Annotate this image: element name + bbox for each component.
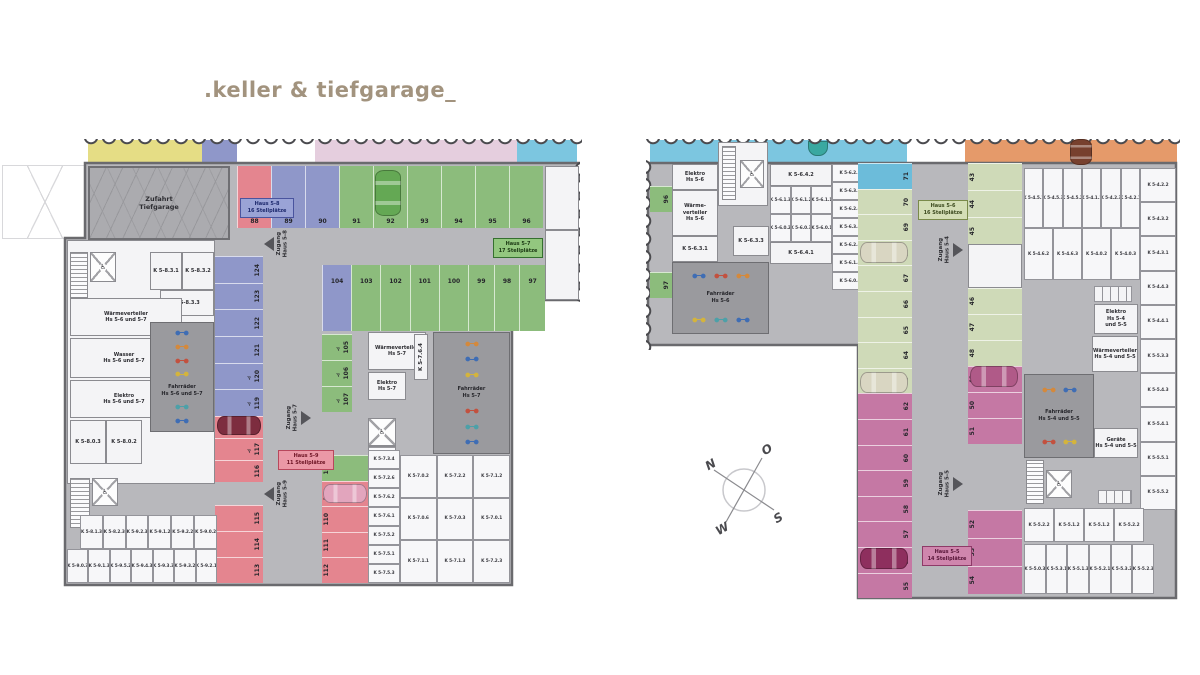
- space-number: 59: [904, 479, 910, 487]
- zugang-label: Zugang Haus 5-4: [938, 236, 951, 263]
- badge-haus-5-9: Haus 5-9 11 Stellplätze: [278, 450, 334, 470]
- bicycle-icon: [692, 273, 706, 279]
- storage-room: K 5-4.6.3: [1053, 228, 1082, 280]
- access-arrow-icon: [953, 477, 963, 491]
- bicycle-icon: [175, 404, 189, 410]
- parking-space: 51: [968, 418, 1022, 444]
- space-number: 121: [255, 344, 261, 357]
- storage-label: K 5-5.5.1: [1148, 456, 1169, 461]
- car-icon: [1070, 139, 1092, 165]
- storage-room: K 5-7.2.6: [368, 469, 400, 488]
- storage-room: K 5-9.0.2: [194, 515, 217, 549]
- storage-label: K 5-6.1.2: [791, 198, 812, 203]
- storage-room: K 5-7.1.3: [437, 540, 474, 583]
- lockers: [1094, 286, 1132, 302]
- bicycle-icon: [736, 273, 750, 279]
- parking-space: ♿117: [215, 438, 263, 460]
- storage-label: K 5-7.5.1: [374, 552, 395, 557]
- access-arrow-icon: [264, 237, 274, 251]
- storage-label: K 5-4.2.1: [1121, 196, 1140, 201]
- bicycle-icon: [1042, 387, 1056, 393]
- badge-haus-5-7: Haus 5-7 17 Stellplätze: [493, 238, 543, 258]
- parking-space: 47: [968, 314, 1022, 340]
- parking-space: 114: [215, 531, 263, 557]
- storage-label: K 5-8.2.3: [104, 530, 125, 535]
- storage-grid-4-row1: K 5-4.5.1K 5-4.5.3K 5-4.5.2K 5-4.1.1K 5-…: [1024, 168, 1140, 228]
- storage-room: K 5-6.0.2: [770, 214, 791, 242]
- parking-space: 55: [858, 573, 912, 599]
- stairs: [722, 146, 736, 200]
- storage-label: K 5-5.0.3: [1024, 567, 1045, 572]
- parking-space: 100: [439, 265, 468, 331]
- storage-label: K 5-7.0.3: [445, 516, 466, 521]
- parking-space: 91: [339, 166, 373, 228]
- storage-label: K 5-4.1.1: [1082, 196, 1101, 201]
- room-k5803: K 5-8.0.3: [70, 420, 106, 464]
- space-number: 92: [386, 219, 394, 225]
- space-number: 51: [970, 427, 976, 435]
- storage-label: K 5-5.2.2: [1029, 523, 1050, 528]
- storage-label: K 5-9.4.3: [132, 564, 153, 569]
- storage-room: K 5-6.1.3: [770, 186, 791, 214]
- car-icon: [860, 372, 908, 393]
- bicycle-icon: [175, 418, 189, 424]
- parking-space: 124: [215, 256, 263, 283]
- zugang-haus-5-9: Zugang Haus 5-9: [264, 480, 289, 507]
- storage-room: K 5-7.6.1: [368, 507, 400, 526]
- room-unlabelled: [545, 230, 579, 300]
- storage-room: K 5-4.2.3: [1101, 168, 1120, 228]
- parking-space: 88: [237, 166, 271, 228]
- space-number: 96: [522, 219, 530, 225]
- storage-room: K 5-4.2.2: [1140, 168, 1176, 202]
- storage-room: K 5-5.2.3: [1132, 544, 1154, 594]
- room-k5802: K 5-8.0.2: [106, 420, 142, 464]
- zugang-haus-5-7: Zugang Haus 5-7: [286, 404, 311, 431]
- storage-label: K 5-9.2.2: [172, 530, 193, 535]
- compass-south-label: S: [771, 510, 785, 526]
- storage-label: K 5-7.0.6: [408, 516, 429, 521]
- parking-space: ♿107: [322, 386, 352, 412]
- storage-row-2: K 5-9.0.3K 5-9.1.3K 5-9.5.2K 5-9.4.3K 5-…: [67, 549, 217, 583]
- storage-label: K 5-7.6.2: [374, 495, 395, 500]
- storage-room: K 5-9.1.3: [88, 549, 109, 583]
- parking-space-96: 96: [650, 186, 672, 212]
- storage-label: K 5-7.2.6: [374, 476, 395, 481]
- storage-label: K 5-5.3.2: [1111, 567, 1132, 572]
- storage-label: K 5-5.1.2: [1089, 523, 1110, 528]
- storage-label: K 5-4.4.3: [1148, 285, 1169, 290]
- parking-space: 121: [215, 336, 263, 363]
- parking-space: 115: [215, 505, 263, 531]
- space-number: 117: [255, 443, 261, 456]
- storage-room: K 5-5.0.3: [1024, 544, 1046, 594]
- badge-line: 14 Stellplätze: [926, 556, 968, 563]
- storage-room: K 5-7.6.2: [368, 488, 400, 507]
- space-number: 71: [904, 172, 910, 180]
- zugang-haus-5-5: Zugang Haus 5-5: [938, 470, 963, 497]
- parking-row-2a: 104103102101100: [322, 265, 468, 331]
- parking-space: 43: [968, 163, 1022, 190]
- parking-space: 97: [519, 265, 545, 331]
- parking-space: 99: [468, 265, 494, 331]
- space-number: 115: [255, 512, 261, 525]
- storage-room: K 5-9.2.3: [126, 515, 149, 549]
- access-arrow-icon: [301, 411, 311, 425]
- storage-room: K 5-7.2.3: [473, 540, 510, 583]
- parking-space: 53: [968, 538, 1022, 566]
- room-elektro-7: ElektroHs 5-7: [368, 372, 406, 400]
- space-number: 124: [255, 264, 261, 277]
- space-number: 67: [904, 274, 910, 282]
- storage-room: K 5-9.4.3: [131, 549, 152, 583]
- storage-label: K 5-6.0.1: [811, 226, 832, 231]
- storage-label: K 5-9.2.1: [196, 564, 217, 569]
- space-number: 97: [664, 281, 670, 289]
- parking-space: 111: [322, 532, 368, 558]
- space-number: 62: [904, 402, 910, 410]
- parking-space: 110: [322, 506, 368, 532]
- storage-edge-col-45: K 5-4.2.2K 5-4.3.2K 5-4.3.1K 5-4.4.3K 5-…: [1140, 168, 1176, 510]
- badge-line: 11 Stellplätze: [282, 460, 330, 467]
- storage-label: K 5-7.0.1: [481, 516, 502, 521]
- space-number: 122: [255, 317, 261, 330]
- room-k5831: K 5-8.3.1: [150, 252, 182, 290]
- storage-room: K 5-4.1.1: [1082, 168, 1101, 228]
- storage-row-1: K 5-8.1.3K 5-8.2.3K 5-9.2.3K 5-9.1.2K 5-…: [80, 515, 217, 549]
- bicycle-icon: [175, 371, 189, 377]
- access-arrow-icon: [264, 487, 274, 501]
- car-icon: [375, 170, 401, 216]
- bicycle-icon: [175, 344, 189, 350]
- storage-room: K 5-5.1.2: [1054, 508, 1084, 542]
- badge-line: Haus 5-5: [926, 549, 968, 556]
- storage-room: K 5-6.1.1: [811, 186, 832, 214]
- room-fahrraeder-45: FahrräderHs 5-4 und 5-5: [1024, 374, 1094, 458]
- parking-space: 60: [858, 445, 912, 471]
- bicycle-icon: [175, 358, 189, 364]
- space-number: 97: [529, 279, 537, 285]
- room-fahrraeder-7: FahrräderHs 5-7: [433, 332, 510, 454]
- wheelchair-icon: ♿: [102, 489, 108, 496]
- storage-room: K 5-7.5.1: [368, 545, 400, 564]
- bicycle-icon: [465, 408, 479, 414]
- storage-label: K 5-5.2.2: [1119, 523, 1140, 528]
- room-elektro-45: ElektroHs 5-4und 5-5: [1094, 304, 1138, 334]
- space-number: 107: [344, 393, 350, 406]
- storage-grid-5-row1: K 5-5.2.2K 5-5.1.2K 5-5.1.2K 5-5.2.2: [1024, 508, 1144, 542]
- wheelchair-icon: ♿: [379, 429, 385, 436]
- room-elektro-6: ElektroHs 5-6: [672, 164, 718, 190]
- compass-east-label: O: [759, 441, 775, 458]
- storage-room: K 5-4.4.1: [1140, 305, 1176, 339]
- storage-label: K 5-9.1.3: [89, 564, 110, 569]
- storage-label: K 5-6.1.1: [811, 198, 832, 203]
- storage-grid-6-row2: K 5-6.0.2K 5-6.0.3K 5-6.0.1: [770, 214, 832, 242]
- parking-col-mixed: 108109110111112: [322, 455, 368, 583]
- wheelchair-icon: ♿: [335, 345, 341, 351]
- storage-room: K 5-8.2.3: [103, 515, 126, 549]
- room-label: Zufahrt: [139, 195, 179, 203]
- storage-col-7: K 5-7.3.4K 5-7.2.6K 5-7.6.2K 5-7.6.1K 5-…: [368, 450, 400, 583]
- storage-room: K 5-7.1.2: [473, 455, 510, 498]
- car-icon: [970, 366, 1018, 387]
- room-waermeverteiler-6: Wärme-verteilerHs 5-6: [672, 190, 718, 236]
- storage-room: K 5-7.2.2: [437, 455, 474, 498]
- storage-label: K 5-7.5.2: [374, 533, 395, 538]
- room-k5633: K 5-6.3.3: [733, 226, 769, 256]
- storage-room: K 5-6.1.2: [791, 186, 812, 214]
- storage-grid-5-row2: K 5-5.0.3K 5-5.3.1K 5-5.1.3K 5-5.2.1K 5-…: [1024, 544, 1154, 594]
- bicycle-icon: [465, 424, 479, 430]
- storage-room: K 5-4.6.2: [1024, 228, 1053, 280]
- parking-space: 64: [858, 342, 912, 368]
- parking-space: 67: [858, 265, 912, 291]
- storage-room: K 5-4.0.3: [1111, 228, 1140, 280]
- space-number: 96: [664, 195, 670, 203]
- storage-label: K 5-9.3.3: [153, 564, 174, 569]
- space-number: 94: [454, 219, 462, 225]
- room-k5641: K 5-6.4.1: [770, 242, 832, 264]
- room-k5764: K 5-7.6.4: [414, 334, 428, 380]
- space-number: 113: [255, 564, 261, 577]
- space-number: 46: [970, 297, 976, 305]
- room-k5642: K 5-6.4.2: [770, 164, 832, 186]
- space-number: 101: [418, 279, 431, 285]
- car-icon: [860, 242, 908, 263]
- torn-edge: [82, 136, 582, 147]
- storage-label: K 5-8.1.3: [81, 530, 102, 535]
- storage-room: K 5-9.3.2: [174, 549, 195, 583]
- wheelchair-icon: ♿: [246, 374, 252, 380]
- parking-space: 94: [441, 166, 475, 228]
- space-number: 95: [488, 219, 496, 225]
- elevator: ♿: [92, 478, 118, 506]
- zugang-label: Zugang Haus 5-7: [286, 404, 299, 431]
- elevator: ♿: [1046, 470, 1072, 498]
- storage-room: K 5-5.2.2: [1114, 508, 1144, 542]
- parking-space: 69: [858, 214, 912, 240]
- parking-space: 104: [322, 265, 351, 331]
- storage-grid-6-row1: K 5-6.1.3K 5-6.1.2K 5-6.1.1: [770, 186, 832, 214]
- stairs: [70, 252, 88, 298]
- space-number: 98: [503, 279, 511, 285]
- parking-space-97: 97: [650, 272, 672, 298]
- parking-row-2b: 999897: [468, 265, 545, 331]
- storage-room: K 5-8.1.3: [80, 515, 103, 549]
- space-number: 105: [344, 341, 350, 354]
- storage-room: K 5-6.0.3: [791, 214, 812, 242]
- badge-line: Haus 5-7: [497, 241, 539, 248]
- zugang-label: Zugang Haus 5-9: [276, 480, 289, 507]
- parking-space: 90: [305, 166, 339, 228]
- space-number: 110: [324, 513, 330, 526]
- compass-west-label: W: [713, 519, 732, 538]
- space-number: 119: [255, 397, 261, 410]
- room-fahrraeder-67: FahrräderHs 5-6 und 5-7: [150, 322, 214, 432]
- space-number: 47: [970, 323, 976, 331]
- floorplan-page: .keller & tiefgarage_ Zufahrt Tiefgarage…: [0, 0, 1200, 675]
- space-number: 99: [477, 279, 485, 285]
- zugang-label: Zugang Haus 5-5: [938, 470, 951, 497]
- car-icon: [323, 484, 367, 503]
- storage-room: K 5-5.3.1: [1046, 544, 1068, 594]
- storage-label: K 5-4.5.3: [1043, 196, 1062, 201]
- zugang-label: Zugang Haus 5-8: [276, 230, 289, 257]
- parking-space: 62: [858, 393, 912, 419]
- storage-label: K 5-7.2.2: [445, 474, 466, 479]
- storage-room: K 5-4.5.3: [1043, 168, 1062, 228]
- storage-grid-7: K 5-7.0.2K 5-7.2.2K 5-7.1.2K 5-7.0.6K 5-…: [400, 455, 510, 583]
- storage-label: K 5-7.2.3: [481, 559, 502, 564]
- storage-label: K 5-7.1.2: [481, 474, 502, 479]
- storage-label: K 5-5.2.3: [1133, 567, 1154, 572]
- storage-label: K 5-5.4.1: [1148, 422, 1169, 427]
- badge-haus-5-5: Haus 5-5 14 Stellplätze: [922, 546, 972, 566]
- parking-col-blue: 124123122121♿120♿119: [215, 256, 263, 416]
- storage-room: K 5-7.0.6: [400, 498, 437, 541]
- bicycle-icon: [1063, 387, 1077, 393]
- storage-room: K 5-4.3.2: [1140, 202, 1176, 236]
- parking-space: 45: [968, 217, 1022, 244]
- bicycle-icon: [465, 439, 479, 445]
- compass-rose: N O S W: [688, 438, 798, 548]
- storage-label: K 5-7.1.3: [445, 559, 466, 564]
- bicycle-icon: [714, 273, 728, 279]
- badge-line: 17 Stellplätze: [497, 248, 539, 255]
- car-icon: [217, 416, 261, 435]
- storage-label: K 5-6.0.2: [770, 226, 791, 231]
- storage-room: K 5-5.4.3: [1140, 373, 1176, 407]
- storage-label: K 5-5.3.3: [1148, 354, 1169, 359]
- space-number: 50: [970, 401, 976, 409]
- elevator: ♿: [740, 160, 764, 188]
- parking-space: 46: [968, 288, 1022, 314]
- parking-space: 61: [858, 419, 912, 445]
- space-number: 89: [284, 219, 292, 225]
- space-number: 102: [389, 279, 402, 285]
- wheelchair-icon: ♿: [749, 171, 755, 178]
- parking-space: 48: [968, 340, 1022, 366]
- storage-label: K 5-7.6.1: [374, 514, 395, 519]
- storage-room: K 5-9.0.3: [67, 549, 88, 583]
- space-number: 116: [255, 465, 261, 478]
- space-number: 114: [255, 538, 261, 551]
- parking-space: 95: [475, 166, 509, 228]
- storage-label: K 5-9.0.3: [67, 564, 88, 569]
- space-number: 57: [904, 530, 910, 538]
- room-unlabelled: [545, 166, 579, 230]
- parking-space: 102: [380, 265, 409, 331]
- badge-line: Haus 5-9: [282, 453, 330, 460]
- storage-label: K 5-4.0.2: [1086, 252, 1107, 257]
- elevator: ♿: [90, 252, 116, 282]
- space-number: 70: [904, 198, 910, 206]
- space-number: 111: [324, 539, 330, 552]
- wheelchair-icon: ♿: [246, 447, 252, 453]
- storage-room: K 5-9.2.1: [196, 549, 217, 583]
- storage-room: K 5-7.0.1: [473, 498, 510, 541]
- storage-label: K 5-9.0.2: [195, 530, 216, 535]
- space-number: 48: [970, 349, 976, 357]
- parking-space: 123: [215, 283, 263, 310]
- parking-space: ♿106: [322, 360, 352, 386]
- bicycle-icon: [1042, 439, 1056, 445]
- parking-space: 57: [858, 521, 912, 547]
- wheelchair-icon: ♿: [335, 397, 341, 403]
- parking-space: 103: [351, 265, 380, 331]
- room-unlabelled: [968, 244, 1022, 288]
- parking-space: 112: [322, 557, 368, 583]
- badge-line: Haus 5-8: [244, 201, 290, 208]
- storage-label: K 5-4.2.2: [1148, 183, 1169, 188]
- parking-col-red-lower: 115114113: [215, 505, 263, 583]
- space-number: 66: [904, 300, 910, 308]
- storage-room: K 5-9.2.2: [171, 515, 194, 549]
- storage-label: K 5-7.1.1: [408, 559, 429, 564]
- parking-space: 50: [968, 392, 1022, 418]
- space-number: 103: [360, 279, 373, 285]
- bicycle-icon: [692, 317, 706, 323]
- storage-label: K 5-9.2.3: [127, 530, 148, 535]
- storage-room: K 5-9.1.2: [148, 515, 171, 549]
- bicycle-icon: [714, 317, 728, 323]
- parking-space: 70: [858, 189, 912, 215]
- storage-room: K 5-4.2.1: [1121, 168, 1140, 228]
- storage-room: K 5-5.1.3: [1067, 544, 1089, 594]
- space-number: 58: [904, 505, 910, 513]
- parking-space: 93: [407, 166, 441, 228]
- room-fahrraeder-6: FahrräderHs 5-6: [672, 262, 769, 334]
- storage-room: K 5-5.1.2: [1084, 508, 1114, 542]
- storage-room: K 5-5.5.2: [1140, 476, 1176, 510]
- storage-label: K 5-4.0.3: [1115, 252, 1136, 257]
- parking-space: 44: [968, 190, 1022, 217]
- storage-room: K 5-7.0.2: [400, 455, 437, 498]
- storage-label: K 5-5.4.3: [1148, 388, 1169, 393]
- bicycle-icon: [1063, 439, 1077, 445]
- space-number: 104: [331, 279, 344, 285]
- bicycle-icon: [465, 356, 479, 362]
- storage-label: K 5-4.3.1: [1148, 251, 1169, 256]
- storage-label: K 5-9.5.2: [110, 564, 131, 569]
- storage-room: K 5-4.5.2: [1063, 168, 1082, 228]
- space-number: 88: [250, 219, 258, 225]
- parking-space: ♿119: [215, 389, 263, 416]
- storage-room: K 5-9.5.2: [110, 549, 131, 583]
- zugang-haus-5-4: Zugang Haus 5-4: [938, 236, 963, 263]
- compass-north-label: N: [703, 456, 719, 473]
- space-number: 91: [352, 219, 360, 225]
- space-number: 90: [318, 219, 326, 225]
- parking-space: ♿120: [215, 363, 263, 390]
- parking-space: 113: [215, 557, 263, 583]
- storage-label: K 5-4.5.2: [1063, 196, 1082, 201]
- storage-room: K 5-4.3.1: [1140, 236, 1176, 270]
- parking-space: ♿105: [322, 334, 352, 360]
- parking-space: 52: [968, 510, 1022, 538]
- parking-space: 101: [410, 265, 439, 331]
- storage-label: K 5-4.6.3: [1057, 252, 1078, 257]
- storage-room: K 5-5.4.1: [1140, 407, 1176, 441]
- room-label: Tiefgarage: [139, 203, 179, 211]
- zugang-haus-5-8: Zugang Haus 5-8: [264, 230, 289, 257]
- parking-col-right-top: 434445: [968, 163, 1022, 244]
- storage-room: K 5-7.0.3: [437, 498, 474, 541]
- bicycle-icon: [465, 341, 479, 347]
- storage-room: K 5-5.5.1: [1140, 442, 1176, 476]
- parking-space: 89: [271, 166, 305, 228]
